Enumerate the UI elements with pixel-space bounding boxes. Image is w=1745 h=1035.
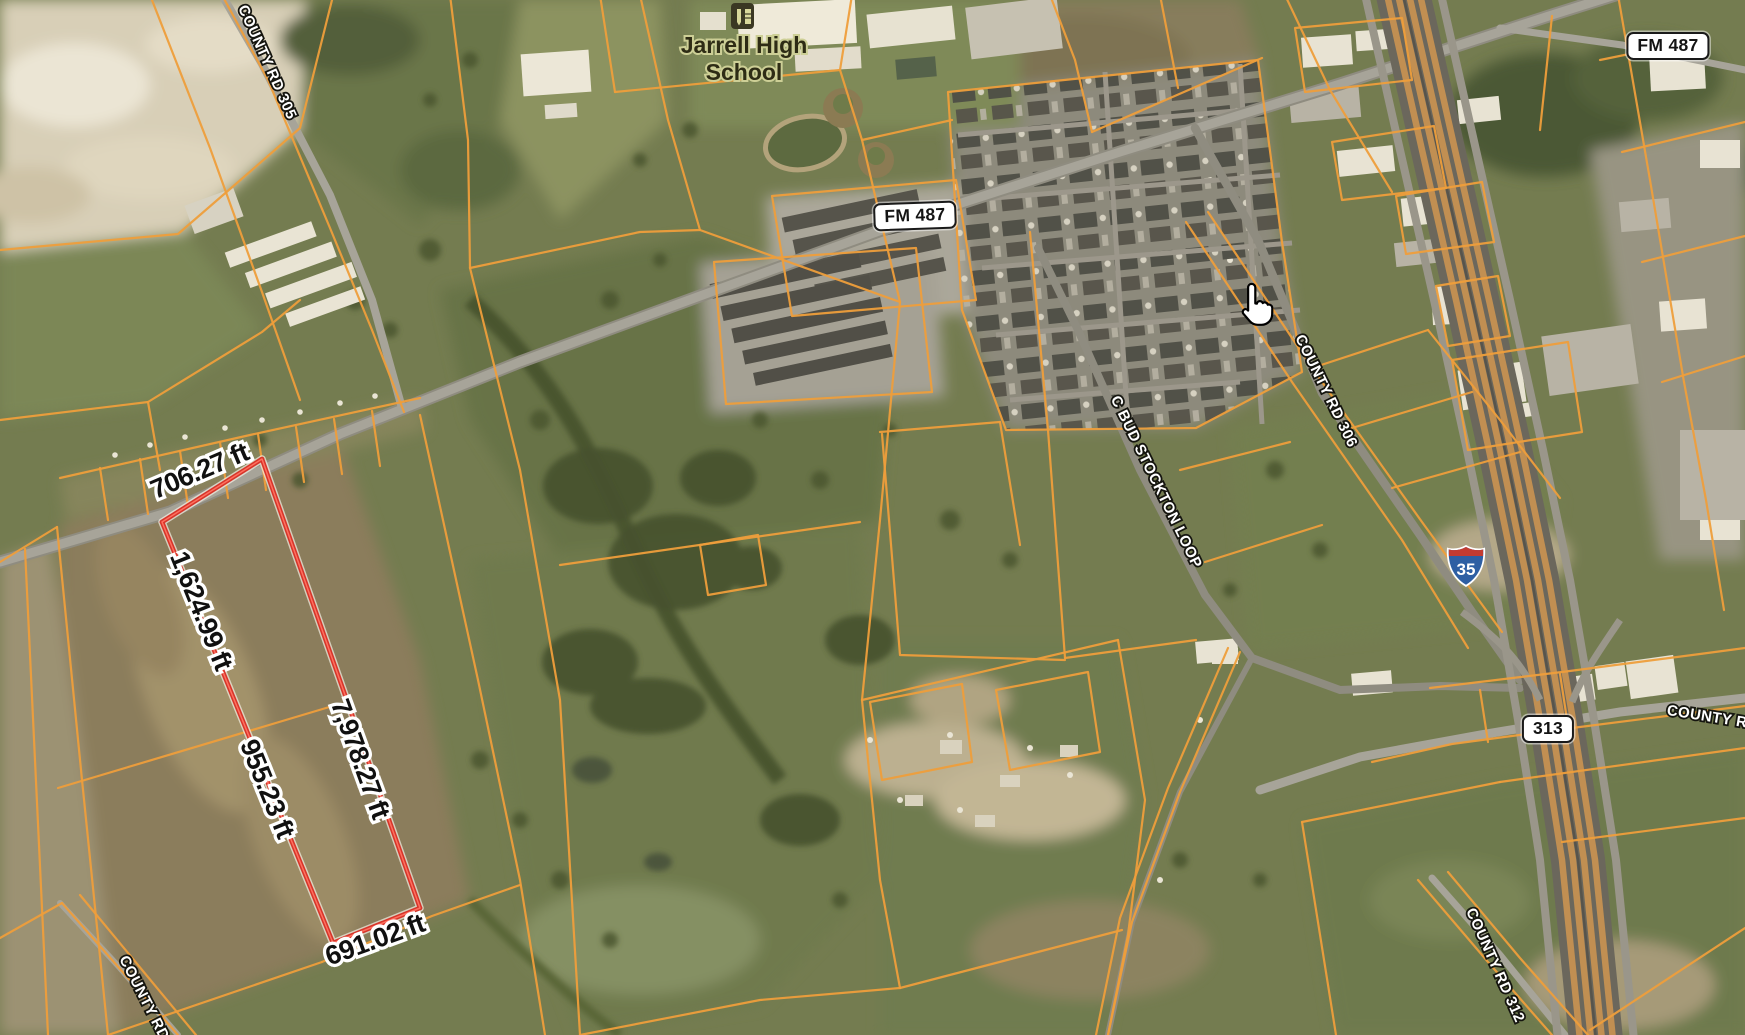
satellite-map-canvas[interactable]: Jarrell High School COUNTY RD 305 COUNTY…: [0, 0, 1745, 1035]
cursor-pointer-icon: [1238, 281, 1282, 329]
school-icon: [731, 3, 754, 29]
school-poi-label-line2: School: [706, 59, 783, 85]
interstate-35-shield: 35: [1446, 544, 1486, 588]
route-badge-fm487-main: FM 487: [873, 201, 957, 232]
map-scenery: Jarrell High School COUNTY RD 305 COUNTY…: [0, 0, 1745, 1035]
school-poi-label-line1: Jarrell High: [681, 32, 808, 58]
route-badge-313: 313: [1522, 715, 1574, 743]
route-badge-fm487-northeast: FM 487: [1626, 32, 1709, 60]
interstate-35-number: 35: [1457, 560, 1476, 579]
